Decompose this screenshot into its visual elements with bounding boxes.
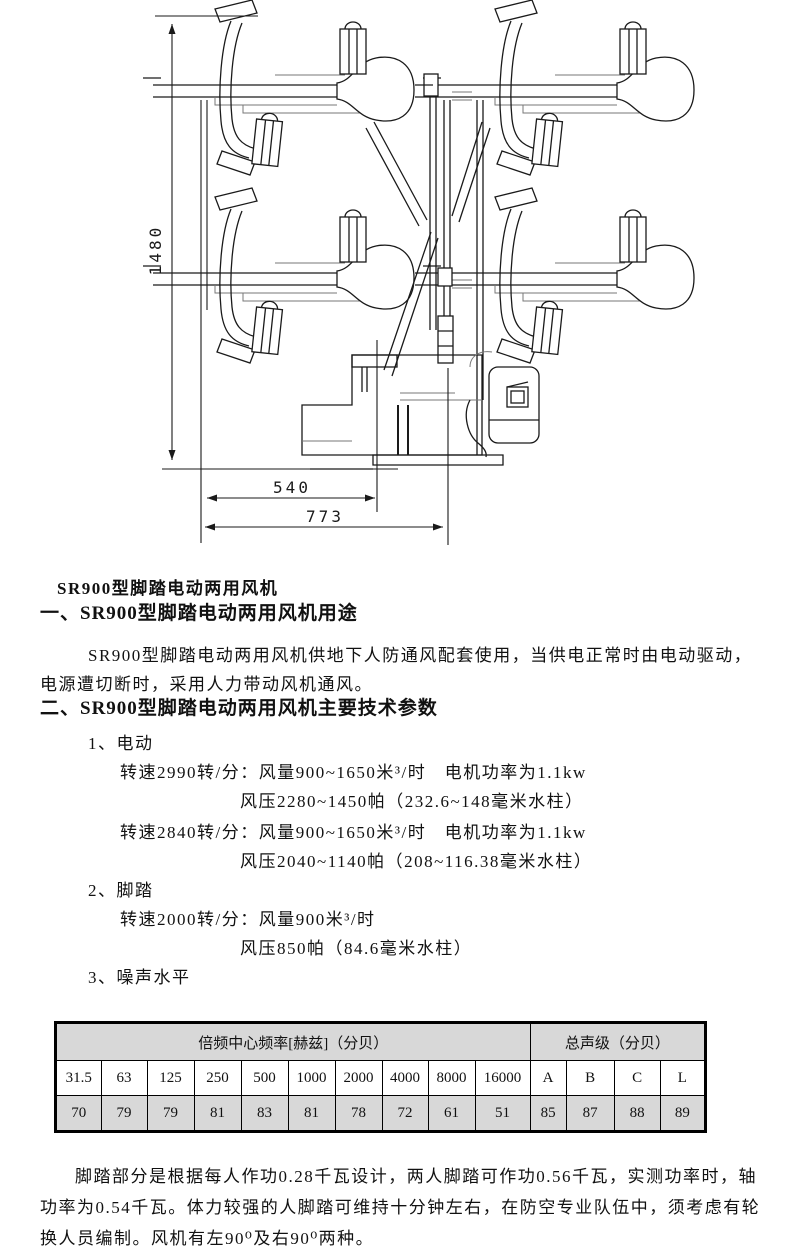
fan-housing <box>302 352 539 469</box>
freq-value: 79 <box>147 1096 194 1132</box>
closing-line2: 功率为0.54千瓦。体力较强的人脚踏可维持十分钟左右，在防空专业队伍中，须考虑有… <box>40 1197 760 1218</box>
freq-value: 70 <box>56 1096 101 1132</box>
freq-col: 250 <box>194 1061 241 1096</box>
dim-outer-width-label: 773 <box>306 507 344 526</box>
pedal-line2: 风压850帕（84.6毫米水柱） <box>240 938 472 959</box>
level-value: 88 <box>614 1096 660 1132</box>
freq-value: 61 <box>428 1096 475 1132</box>
electric-line4: 风压2040~1140帕（208~116.38毫米水柱） <box>240 851 592 872</box>
section1-line1: SR900型脚踏电动两用风机供地下人防通风配套使用，当供电正常时由电动驱动， <box>88 645 752 666</box>
level-value: 85 <box>530 1096 566 1132</box>
pedal-station-bottom-right <box>423 188 694 363</box>
freq-value: 72 <box>382 1096 428 1132</box>
frame-and-shaft <box>366 74 490 455</box>
freq-value: 81 <box>194 1096 241 1132</box>
freq-value: 79 <box>101 1096 147 1132</box>
section1-line2: 电源遭切断时，采用人力带动风机通风。 <box>40 674 373 695</box>
freq-value: 81 <box>288 1096 335 1132</box>
freq-col: 63 <box>101 1061 147 1096</box>
table-values-row: 70 79 79 81 83 81 78 72 61 51 85 87 88 8… <box>56 1096 705 1132</box>
freq-col: 4000 <box>382 1061 428 1096</box>
freq-col: 8000 <box>428 1061 475 1096</box>
freq-value: 78 <box>335 1096 382 1132</box>
level-col: B <box>566 1061 614 1096</box>
doc-title: SR900型脚踏电动两用风机 <box>57 578 278 599</box>
freq-col: 125 <box>147 1061 194 1096</box>
noise-level-table: 倍频中心频率[赫兹]（分贝） 总声级（分贝） 31.5 63 125 250 5… <box>55 1022 706 1132</box>
freq-col: 500 <box>241 1061 288 1096</box>
freq-col: 31.5 <box>56 1061 101 1096</box>
freq-col: 2000 <box>335 1061 382 1096</box>
dim-inner-width-label: 540 <box>273 478 311 497</box>
technical-drawing: 1480 540 773 <box>0 0 800 560</box>
pedal-station-bottom-left <box>143 188 414 363</box>
document-page: 1480 540 773 SR900型脚踏电动两用风机 一、SR900型脚踏电动… <box>0 0 800 1254</box>
level-value: 87 <box>566 1096 614 1132</box>
pedal-station-top-left <box>143 0 414 175</box>
freq-col: 16000 <box>475 1061 530 1096</box>
dim-height-label: 1480 <box>146 225 165 276</box>
closing-line1: 脚踏部分是根据每人作功0.28千瓦设计，两人脚踏可作功0.56千瓦，实测功率时，… <box>75 1166 757 1187</box>
section2-heading: 二、SR900型脚踏电动两用风机主要技术参数 <box>40 698 438 719</box>
table-column-header-row: 31.5 63 125 250 500 1000 2000 4000 8000 … <box>56 1061 705 1096</box>
electric-label: 1、电动 <box>88 733 154 754</box>
electric-line1: 转速2990转/分：风量900~1650米³/时 电机功率为1.1kw <box>120 762 587 783</box>
pedal-label: 2、脚踏 <box>88 880 154 901</box>
level-col: L <box>660 1061 705 1096</box>
freq-value: 51 <box>475 1096 530 1132</box>
freq-group-header: 倍频中心频率[赫兹]（分贝） <box>56 1023 530 1061</box>
section1-heading: 一、SR900型脚踏电动两用风机用途 <box>40 603 358 624</box>
pedal-line1: 转速2000转/分：风量900米³/时 <box>120 909 376 930</box>
table-group-header-row: 倍频中心频率[赫兹]（分贝） 总声级（分贝） <box>56 1023 705 1061</box>
electric-line3: 转速2840转/分：风量900~1650米³/时 电机功率为1.1kw <box>120 822 587 843</box>
level-col: C <box>614 1061 660 1096</box>
electric-line2: 风压2280~1450帕（232.6~148毫米水柱） <box>240 791 584 812</box>
motor <box>489 367 539 443</box>
freq-col: 1000 <box>288 1061 335 1096</box>
noise-label: 3、噪声水平 <box>88 967 191 988</box>
freq-value: 83 <box>241 1096 288 1132</box>
level-col: A <box>530 1061 566 1096</box>
closing-line3: 换人员编制。风机有左90⁰及右90⁰两种。 <box>40 1228 374 1249</box>
pedal-station-top-right <box>423 0 694 175</box>
level-value: 89 <box>660 1096 705 1132</box>
level-group-header: 总声级（分贝） <box>530 1023 705 1061</box>
